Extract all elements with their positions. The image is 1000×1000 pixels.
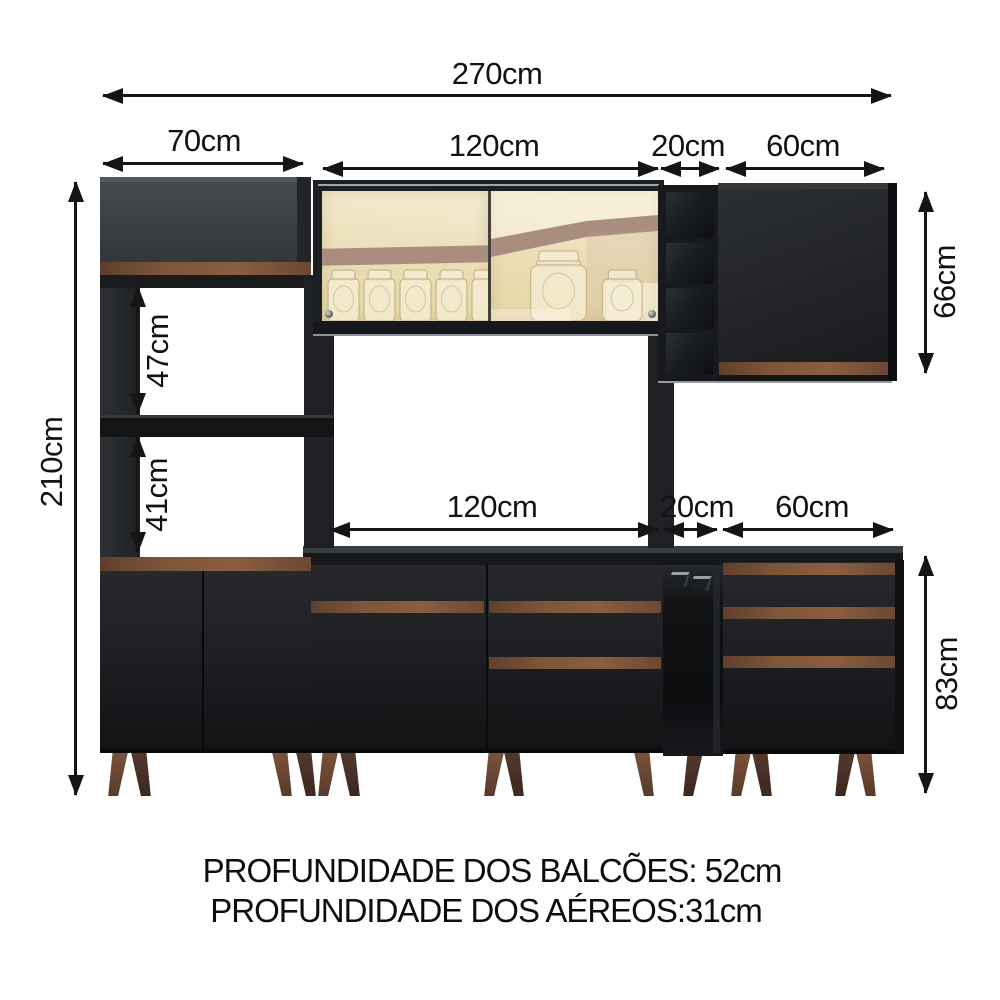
glass-sliding-door-right [491,191,658,321]
dim-arrow-counter-niche-width [664,528,717,531]
upper-right-cabinet-side-face [888,183,897,381]
furniture-leg [340,752,362,796]
drawer-unit-side-face [895,560,904,754]
niche-shelf-cell [666,243,714,284]
furniture-leg [106,752,128,796]
dim-arrow-upper-cabinet-width [323,167,658,170]
dim-arrow-tower-width [103,162,303,165]
dim-arrow-counter-height [924,556,927,793]
tower-top-side-face [297,177,311,275]
counter-drawer-handle-trim [489,657,661,669]
niche-hook [668,572,690,587]
tower-base-doors [100,571,311,753]
upper-niche-shelves [658,185,721,381]
dim-label-lower-opening-height: 41cm [139,458,175,532]
upper-right-cabinet-bottom-highlight [658,381,892,383]
upper-right-cabinet-door [718,189,888,362]
dim-arrow-total-width [103,94,891,97]
niche-shelf-cell [666,192,714,238]
drawer-handle-trim [723,607,895,619]
furniture-leg [729,752,751,796]
dim-label-tower-width: 70cm [167,123,241,159]
dim-label-upper-right-cabinet-height: 66cm [927,245,963,319]
furniture-leg [752,752,774,796]
glass-cabinet-bottom-highlight [313,334,664,336]
furniture-leg [856,752,878,796]
glass-door-screw [325,310,333,318]
depth-note-counters: PROFUNDIDADE DOS BALCÕES: 52cm [203,852,782,890]
dim-label-upper-niche-width: 20cm [651,128,725,164]
dim-label-upper-opening-height: 47cm [140,314,176,388]
counter-drawer-handle-trim [489,601,661,613]
furniture-leg [272,752,294,796]
furniture-leg [833,752,855,796]
dim-arrow-counter-drawer-unit-width [723,528,893,531]
drawer-handle-trim [723,656,895,668]
dim-label-upper-right-door-width: 60cm [766,128,840,164]
furniture-leg [296,752,318,796]
tower-bottom-edge [100,749,311,753]
dim-arrow-counter-width [330,528,658,531]
furniture-leg [504,752,526,796]
glass-reflection-art-right [491,191,658,321]
counter-drawer-handle-trim [309,601,484,613]
dim-label-total-width: 270cm [452,56,543,92]
dim-label-total-height: 210cm [34,417,70,508]
drawer-unit-bottom-edge [723,750,895,754]
dim-label-counter-width: 120cm [447,489,538,525]
niche-shelf-cell [666,288,714,329]
tower-door-seam [202,571,204,753]
drawer-handle-trim [723,563,895,575]
counter-door-seam [486,565,488,752]
dim-label-counter-niche-width: 20cm [660,489,734,525]
furniture-leg [681,752,703,796]
tower-wood-trim [100,262,311,275]
glass-door-screw [648,310,656,318]
glass-cabinet-top-highlight [318,184,659,186]
depth-note-wall-cabinets: PROFUNDIDADE DOS AÉREOS:31cm [210,892,761,930]
dim-label-counter-height: 83cm [929,637,965,711]
glass-reflection-art-left [322,191,488,321]
dim-arrow-upper-opening-height [136,287,139,413]
niche-shelf-cell [666,333,714,375]
dim-label-upper-cabinet-width: 120cm [449,128,540,164]
tower-middle-shelf [100,415,334,437]
dim-arrow-total-height [74,182,77,795]
tower-base-wood-trim [100,557,311,571]
glass-cabinet-bottom-bar [313,321,664,334]
dim-arrow-upper-right-door-width [726,167,884,170]
furniture-leg [131,752,153,796]
glass-sliding-door-left [322,191,488,321]
dim-arrow-upper-niche-width [661,167,719,170]
counter-niche-side-highlight [713,567,720,753]
tower-top-door [100,182,297,262]
upper-right-cabinet-wood-trim [719,362,888,375]
counter-bottom-edge [306,749,663,753]
dim-label-counter-drawer-unit-width: 60cm [775,489,849,525]
furniture-leg [634,752,656,796]
furniture-leg [316,752,338,796]
niche-hook [690,576,712,591]
kitchen-set-dimension-diagram: 270cm 70cm 120cm 20cm 60cm 210cm 47cm 41… [0,0,1000,1000]
furniture-leg [482,752,504,796]
